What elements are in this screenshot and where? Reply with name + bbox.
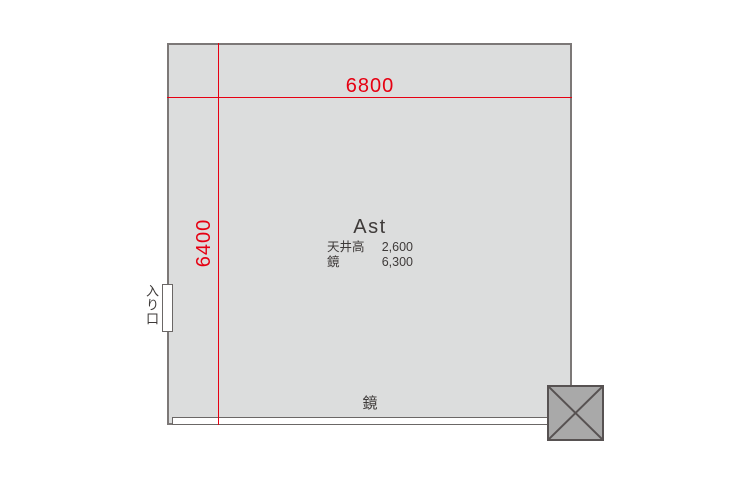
mirror-label: 鏡 (362, 396, 377, 411)
height-dimension-label: 6400 (194, 219, 214, 268)
ceiling-height-row: 天井高 2,600 (327, 240, 413, 255)
mirror-spec-row: 鏡 6,300 (327, 255, 413, 270)
mirror-spec-label: 鏡 (327, 255, 340, 270)
mirror-bar (172, 417, 549, 425)
entrance-door (162, 284, 173, 332)
mirror-spec-value: 6,300 (382, 255, 413, 270)
width-dimension-line (167, 97, 572, 98)
height-dimension-line (218, 43, 219, 425)
room-name-label: Ast (353, 216, 386, 239)
pillar-x-icon (549, 387, 602, 439)
room-spec-table: 天井高 2,600 鏡 6,300 (327, 240, 413, 269)
pillar (547, 385, 604, 441)
ceiling-height-label: 天井高 (327, 240, 365, 255)
entrance-label: 入り口 (145, 284, 158, 334)
width-dimension-label: 6800 (346, 76, 395, 96)
ceiling-height-value: 2,600 (382, 240, 413, 255)
floor-plan: 6800 6400 Ast 天井高 2,600 鏡 6,300 鏡 入り口 (0, 0, 750, 498)
